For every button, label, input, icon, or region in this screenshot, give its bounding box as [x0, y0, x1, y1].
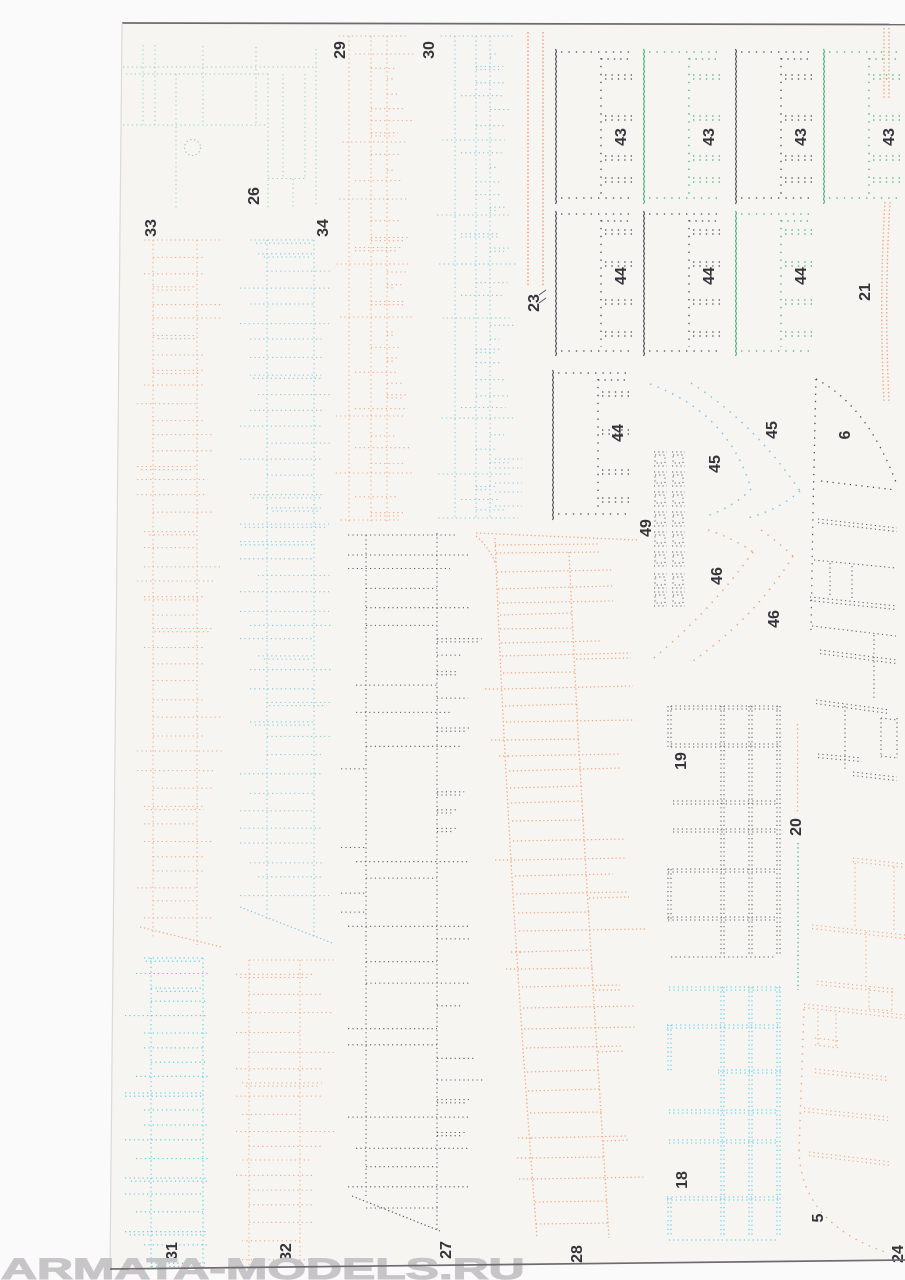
svg-text:44: 44	[613, 267, 630, 285]
svg-text:20: 20	[788, 818, 805, 836]
svg-text:46: 46	[709, 567, 726, 585]
svg-text:44: 44	[793, 267, 810, 285]
svg-text:23: 23	[526, 294, 543, 312]
svg-text:6: 6	[837, 430, 854, 439]
svg-text:34: 34	[315, 219, 332, 237]
svg-text:43: 43	[613, 128, 630, 146]
svg-text:49: 49	[638, 519, 655, 537]
svg-text:29: 29	[332, 41, 349, 59]
svg-text:19: 19	[673, 752, 690, 770]
svg-text:43: 43	[881, 128, 898, 146]
svg-text:30: 30	[421, 41, 438, 59]
svg-text:33: 33	[143, 219, 160, 237]
svg-text:45: 45	[707, 455, 724, 473]
svg-text:44: 44	[701, 267, 718, 285]
svg-text:26: 26	[246, 187, 263, 205]
svg-text:45: 45	[764, 421, 781, 439]
svg-text:43: 43	[701, 128, 718, 146]
svg-text:21: 21	[857, 283, 874, 301]
svg-text:44: 44	[610, 424, 627, 442]
svg-text:43: 43	[793, 128, 810, 146]
svg-text:28: 28	[569, 1245, 586, 1263]
svg-text:5: 5	[810, 1213, 827, 1222]
svg-text:46: 46	[766, 610, 783, 628]
svg-text:18: 18	[674, 1171, 691, 1189]
